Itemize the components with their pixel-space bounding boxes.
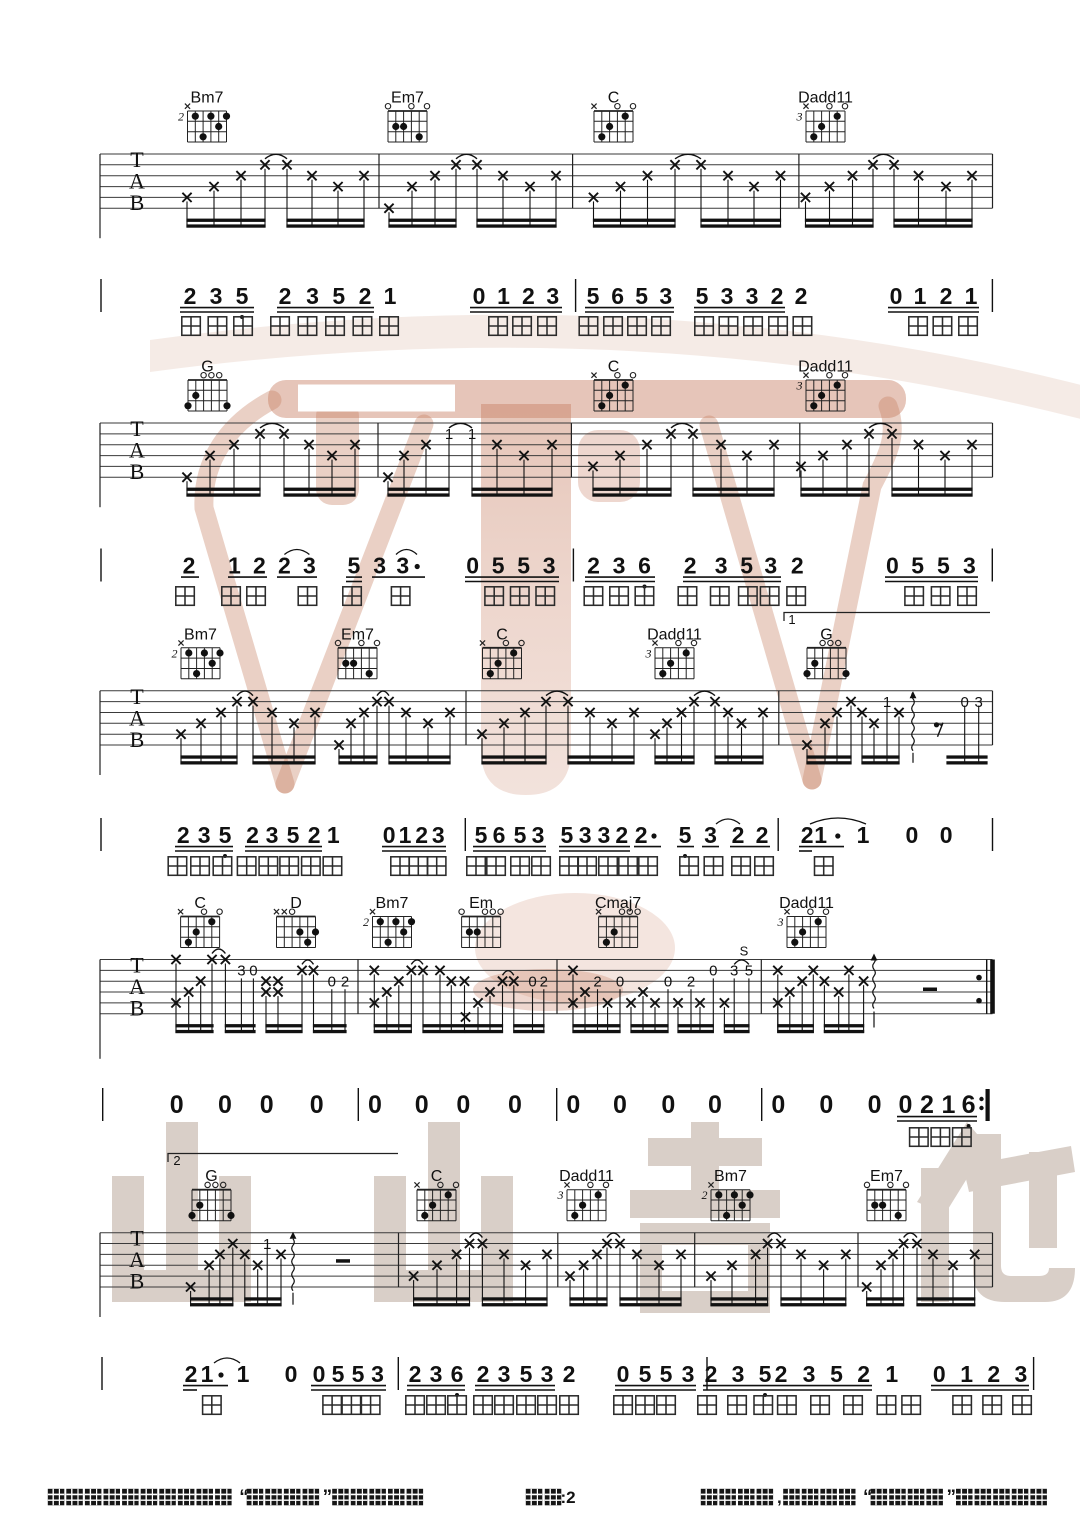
svg-text:2: 2	[172, 646, 178, 660]
svg-text:5: 5	[492, 553, 505, 579]
svg-text:2: 2	[563, 1361, 576, 1387]
svg-text:2: 2	[756, 822, 769, 848]
svg-text:3: 3	[498, 1361, 511, 1387]
svg-text:3: 3	[721, 283, 734, 309]
svg-text:2: 2	[359, 283, 372, 309]
svg-text:3: 3	[430, 1361, 443, 1387]
svg-text:B: B	[130, 727, 145, 752]
svg-text:”: ”	[946, 1487, 956, 1508]
svg-text:2: 2	[684, 553, 697, 579]
svg-text:0: 0	[218, 1091, 232, 1119]
svg-text:1: 1	[941, 1091, 955, 1119]
svg-text:5: 5	[745, 963, 753, 980]
svg-text:2: 2	[801, 822, 814, 848]
svg-text:0: 0	[170, 1091, 184, 1119]
svg-text:0: 0	[415, 1091, 429, 1119]
svg-text:2: 2	[184, 283, 197, 309]
svg-text:5: 5	[517, 553, 530, 579]
svg-text:3: 3	[371, 1361, 384, 1387]
svg-text:2: 2	[540, 973, 548, 990]
svg-text:2: 2	[183, 553, 196, 579]
svg-text:0: 0	[868, 1091, 882, 1119]
svg-text:2: 2	[795, 283, 808, 309]
svg-text:2: 2	[409, 1361, 422, 1387]
svg-text:3: 3	[715, 553, 728, 579]
svg-text:0: 0	[899, 1091, 913, 1119]
svg-text:2: 2	[177, 822, 190, 848]
svg-text:2: 2	[940, 283, 953, 309]
svg-text:3: 3	[764, 553, 777, 579]
svg-text:2: 2	[341, 973, 349, 990]
svg-text:0: 0	[566, 1091, 580, 1119]
svg-text:2: 2	[246, 822, 259, 848]
svg-text:2: 2	[635, 822, 648, 848]
svg-text:3: 3	[579, 822, 592, 848]
svg-text:0: 0	[661, 1091, 675, 1119]
svg-text:0: 0	[466, 553, 479, 579]
svg-text:3: 3	[373, 553, 386, 579]
svg-text:3: 3	[303, 553, 316, 579]
svg-text:5: 5	[287, 822, 300, 848]
svg-text:0: 0	[617, 1361, 630, 1387]
svg-text:0: 0	[940, 822, 953, 848]
svg-text:0: 0	[933, 1361, 946, 1387]
svg-text:3: 3	[777, 915, 784, 929]
svg-text:6: 6	[451, 1361, 464, 1387]
svg-text:0: 0	[664, 973, 672, 990]
svg-text:3: 3	[796, 110, 803, 124]
svg-text:3: 3	[796, 379, 803, 393]
svg-text:”: ”	[323, 1487, 333, 1508]
svg-text:5: 5	[740, 553, 753, 579]
svg-text:0: 0	[819, 1091, 833, 1119]
svg-text:6: 6	[638, 553, 651, 579]
svg-text:2: 2	[415, 822, 428, 848]
svg-text:1: 1	[399, 822, 412, 848]
svg-text:5: 5	[236, 283, 249, 309]
svg-text:0: 0	[708, 1091, 722, 1119]
svg-text:2: 2	[279, 283, 292, 309]
svg-text:5: 5	[759, 1361, 772, 1387]
svg-text:0: 0	[508, 1091, 522, 1119]
svg-text:2: 2	[593, 973, 601, 990]
svg-text:3: 3	[746, 283, 759, 309]
svg-text:0: 0	[473, 283, 486, 309]
svg-text:5: 5	[514, 822, 527, 848]
svg-text:B: B	[130, 996, 145, 1021]
svg-text:1: 1	[384, 283, 397, 309]
svg-text:,: ,	[777, 1488, 782, 1507]
svg-text:5: 5	[332, 1361, 345, 1387]
svg-text:6: 6	[611, 283, 624, 309]
svg-text:2: 2	[522, 283, 535, 309]
svg-text:3: 3	[1015, 1361, 1028, 1387]
svg-text:2: 2	[920, 1091, 934, 1119]
svg-text:0: 0	[313, 1361, 326, 1387]
svg-text:3: 3	[266, 822, 279, 848]
svg-text:5: 5	[561, 822, 574, 848]
svg-text:5: 5	[911, 553, 924, 579]
svg-text:3: 3	[732, 1361, 745, 1387]
svg-text:5: 5	[348, 553, 361, 579]
svg-text:3: 3	[803, 1361, 816, 1387]
svg-text:5: 5	[937, 553, 950, 579]
svg-text:2: 2	[687, 973, 695, 990]
svg-text:3: 3	[546, 283, 559, 309]
svg-text:Bm7: Bm7	[184, 626, 217, 643]
svg-text:2: 2	[987, 1361, 1000, 1387]
svg-text:Bm7: Bm7	[191, 90, 224, 107]
svg-text:2: 2	[775, 1361, 788, 1387]
svg-text:5: 5	[830, 1361, 843, 1387]
svg-text:2: 2	[253, 553, 266, 579]
svg-text:5: 5	[587, 283, 600, 309]
svg-text:2: 2	[477, 1361, 490, 1387]
svg-text:0: 0	[528, 973, 536, 990]
svg-text:5: 5	[639, 1361, 652, 1387]
svg-text:0: 0	[383, 822, 396, 848]
svg-text:1: 1	[814, 822, 827, 848]
svg-text:0: 0	[709, 963, 717, 980]
svg-text:1: 1	[857, 822, 870, 848]
svg-text:Em7: Em7	[870, 1168, 903, 1185]
svg-text:0: 0	[906, 822, 919, 848]
svg-text::2: :2	[560, 1488, 575, 1507]
svg-text:2: 2	[308, 822, 321, 848]
svg-text:3: 3	[963, 553, 976, 579]
svg-text:0: 0	[890, 283, 903, 309]
svg-text:B: B	[130, 190, 145, 215]
svg-text:0: 0	[328, 973, 336, 990]
svg-text:3: 3	[598, 822, 611, 848]
svg-text:0: 0	[260, 1091, 274, 1119]
svg-text:0: 0	[249, 963, 257, 980]
svg-text:S: S	[740, 944, 749, 959]
svg-text:3: 3	[613, 553, 626, 579]
svg-text:5: 5	[696, 283, 709, 309]
svg-text:1: 1	[788, 612, 795, 627]
svg-text:3: 3	[704, 822, 717, 848]
svg-text:3: 3	[237, 963, 245, 980]
svg-text:3: 3	[541, 1361, 554, 1387]
svg-text:2: 2	[732, 822, 745, 848]
svg-text:2: 2	[702, 1188, 708, 1202]
svg-text:2: 2	[173, 1153, 180, 1168]
svg-text:2: 2	[791, 553, 804, 579]
svg-text:5: 5	[635, 283, 648, 309]
svg-text:5: 5	[660, 1361, 673, 1387]
svg-text:1: 1	[960, 1361, 973, 1387]
svg-text:3: 3	[198, 822, 211, 848]
svg-text:0: 0	[368, 1091, 382, 1119]
svg-text:0: 0	[310, 1091, 324, 1119]
svg-text:Cmaj7: Cmaj7	[595, 895, 641, 912]
svg-text:3: 3	[543, 553, 556, 579]
svg-text:2: 2	[857, 1361, 870, 1387]
svg-text:2: 2	[178, 110, 184, 124]
svg-text:3: 3	[306, 283, 319, 309]
svg-text:5: 5	[352, 1361, 365, 1387]
svg-text:1: 1	[228, 553, 241, 579]
svg-text:5: 5	[332, 283, 345, 309]
svg-text:2: 2	[615, 822, 628, 848]
svg-text:2: 2	[771, 283, 784, 309]
svg-text:3: 3	[730, 963, 738, 980]
svg-text:Em: Em	[469, 895, 493, 912]
svg-text:6: 6	[493, 822, 506, 848]
svg-text:1: 1	[965, 283, 978, 309]
svg-text:Em7: Em7	[341, 626, 374, 643]
svg-text:3: 3	[432, 822, 445, 848]
svg-text:2: 2	[185, 1361, 198, 1387]
svg-text:3: 3	[532, 822, 545, 848]
svg-text:0: 0	[616, 973, 624, 990]
svg-text:0: 0	[613, 1091, 627, 1119]
svg-text:0: 0	[771, 1091, 785, 1119]
svg-text:2: 2	[278, 553, 291, 579]
svg-text:3: 3	[645, 646, 652, 660]
svg-text:B: B	[130, 459, 145, 484]
svg-text:3: 3	[659, 283, 672, 309]
svg-text:5: 5	[520, 1361, 533, 1387]
svg-text:Bm7: Bm7	[376, 895, 409, 912]
svg-text:6: 6	[962, 1091, 976, 1119]
svg-text:2: 2	[705, 1361, 718, 1387]
svg-text:3: 3	[557, 1188, 564, 1202]
svg-text:1: 1	[914, 283, 927, 309]
svg-text:5: 5	[679, 822, 692, 848]
svg-text:1: 1	[497, 283, 510, 309]
svg-text:3: 3	[210, 283, 223, 309]
svg-text:1: 1	[201, 1361, 214, 1387]
svg-text:3: 3	[682, 1361, 695, 1387]
svg-text:0: 0	[285, 1361, 298, 1387]
svg-text:1: 1	[327, 822, 340, 848]
svg-text:1: 1	[237, 1361, 250, 1387]
svg-text:5: 5	[475, 822, 488, 848]
svg-text:2: 2	[587, 553, 600, 579]
svg-text:0: 0	[886, 553, 899, 579]
svg-text:0: 0	[456, 1091, 470, 1119]
svg-text:Em7: Em7	[391, 90, 424, 107]
svg-text:Bm7: Bm7	[714, 1168, 747, 1185]
svg-text:5: 5	[219, 822, 232, 848]
svg-text:2: 2	[363, 915, 369, 929]
svg-text:3: 3	[396, 553, 409, 579]
svg-text:B: B	[130, 1269, 145, 1294]
svg-text:1: 1	[885, 1361, 898, 1387]
